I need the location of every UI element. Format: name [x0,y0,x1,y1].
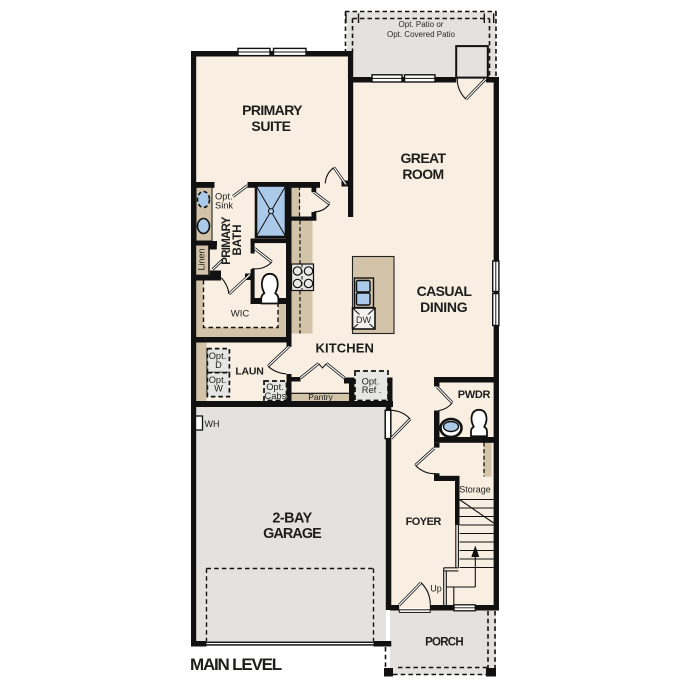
svg-text:GREAT: GREAT [401,150,447,166]
svg-text:Ref .: Ref . [362,385,382,395]
svg-text:ROOM: ROOM [402,166,443,182]
svg-text:Opt. Patio or: Opt. Patio or [399,20,444,29]
svg-text:PORCH: PORCH [425,637,463,649]
svg-text:Up: Up [430,583,442,593]
svg-text:BATH: BATH [232,224,244,255]
svg-text:Storage: Storage [459,484,491,494]
svg-text:FOYER: FOYER [406,516,442,528]
svg-text:Linen: Linen [197,248,207,270]
svg-text:DINING: DINING [420,299,468,315]
svg-text:CASUAL: CASUAL [417,283,473,299]
svg-text:D: D [215,360,222,370]
svg-text:LAUN: LAUN [235,366,263,378]
svg-text:WH: WH [205,419,220,429]
svg-text:PWDR: PWDR [458,389,491,401]
svg-text:Opt. Covered Patio: Opt. Covered Patio [387,30,456,39]
svg-text:Pantry: Pantry [308,392,333,402]
svg-text:GARAGE: GARAGE [263,526,322,542]
svg-text:2-BAY: 2-BAY [272,510,312,526]
svg-text:SUITE: SUITE [251,118,290,134]
svg-text:MAIN LEVEL: MAIN LEVEL [190,655,282,674]
svg-text:W: W [214,384,223,394]
svg-text:KITCHEN: KITCHEN [316,341,374,356]
svg-text:WIC: WIC [231,309,250,320]
svg-text:Cabs: Cabs [265,391,287,401]
svg-text:DW: DW [356,315,371,325]
svg-text:PRIMARY: PRIMARY [242,102,303,118]
svg-text:Sink: Sink [215,201,233,211]
